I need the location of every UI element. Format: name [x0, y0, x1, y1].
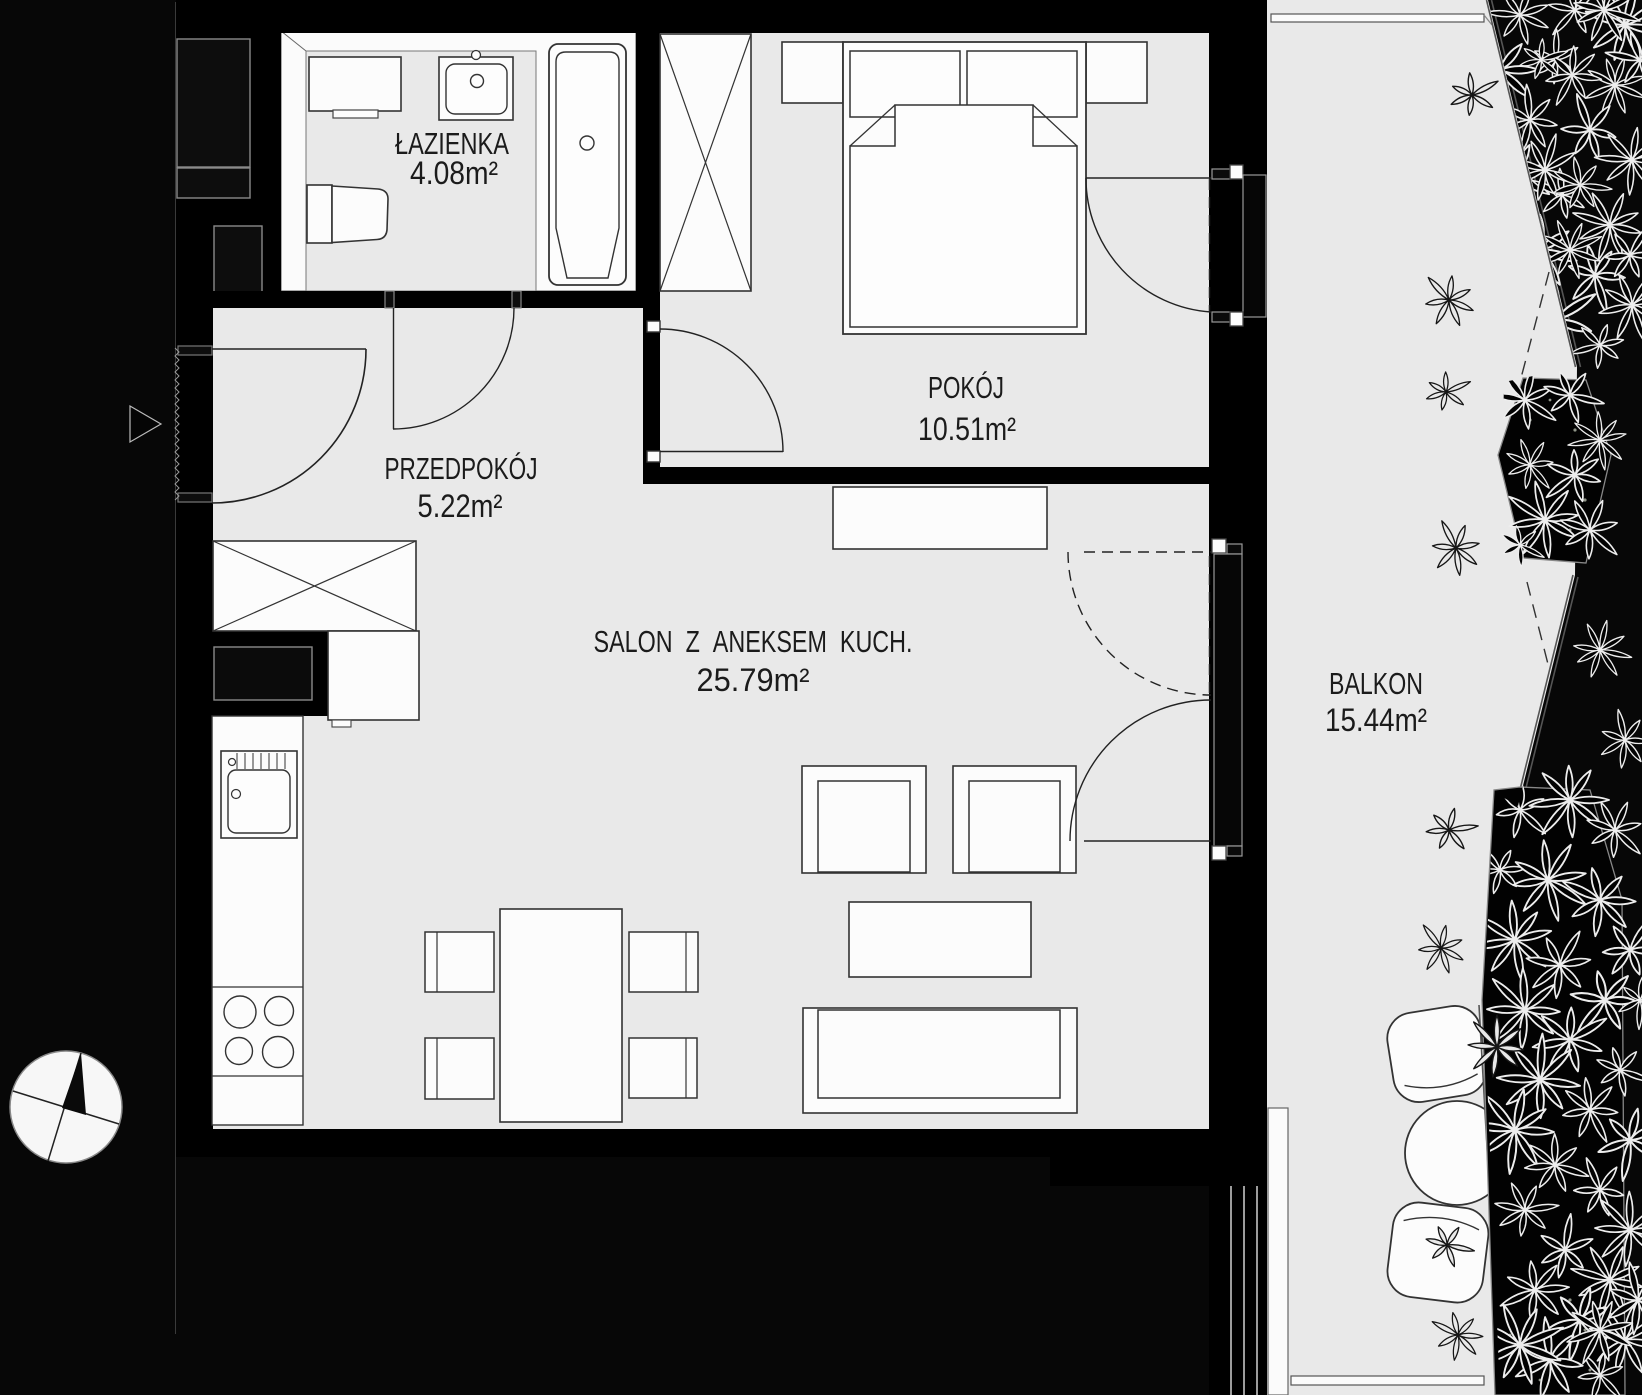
- svg-text:4.08m²: 4.08m²: [410, 155, 498, 191]
- svg-text:SALON Z ANEKSEM KUCH.: SALON Z ANEKSEM KUCH.: [594, 624, 913, 659]
- svg-text:10.51m²: 10.51m²: [918, 411, 1016, 447]
- svg-text:POKÓJ: POKÓJ: [928, 370, 1004, 405]
- svg-text:5.22m²: 5.22m²: [418, 488, 503, 524]
- svg-text:PRZEDPOKÓJ: PRZEDPOKÓJ: [385, 451, 538, 486]
- svg-text:BALKON: BALKON: [1329, 666, 1423, 701]
- svg-text:15.44m²: 15.44m²: [1325, 702, 1427, 738]
- svg-text:25.79m²: 25.79m²: [697, 662, 810, 698]
